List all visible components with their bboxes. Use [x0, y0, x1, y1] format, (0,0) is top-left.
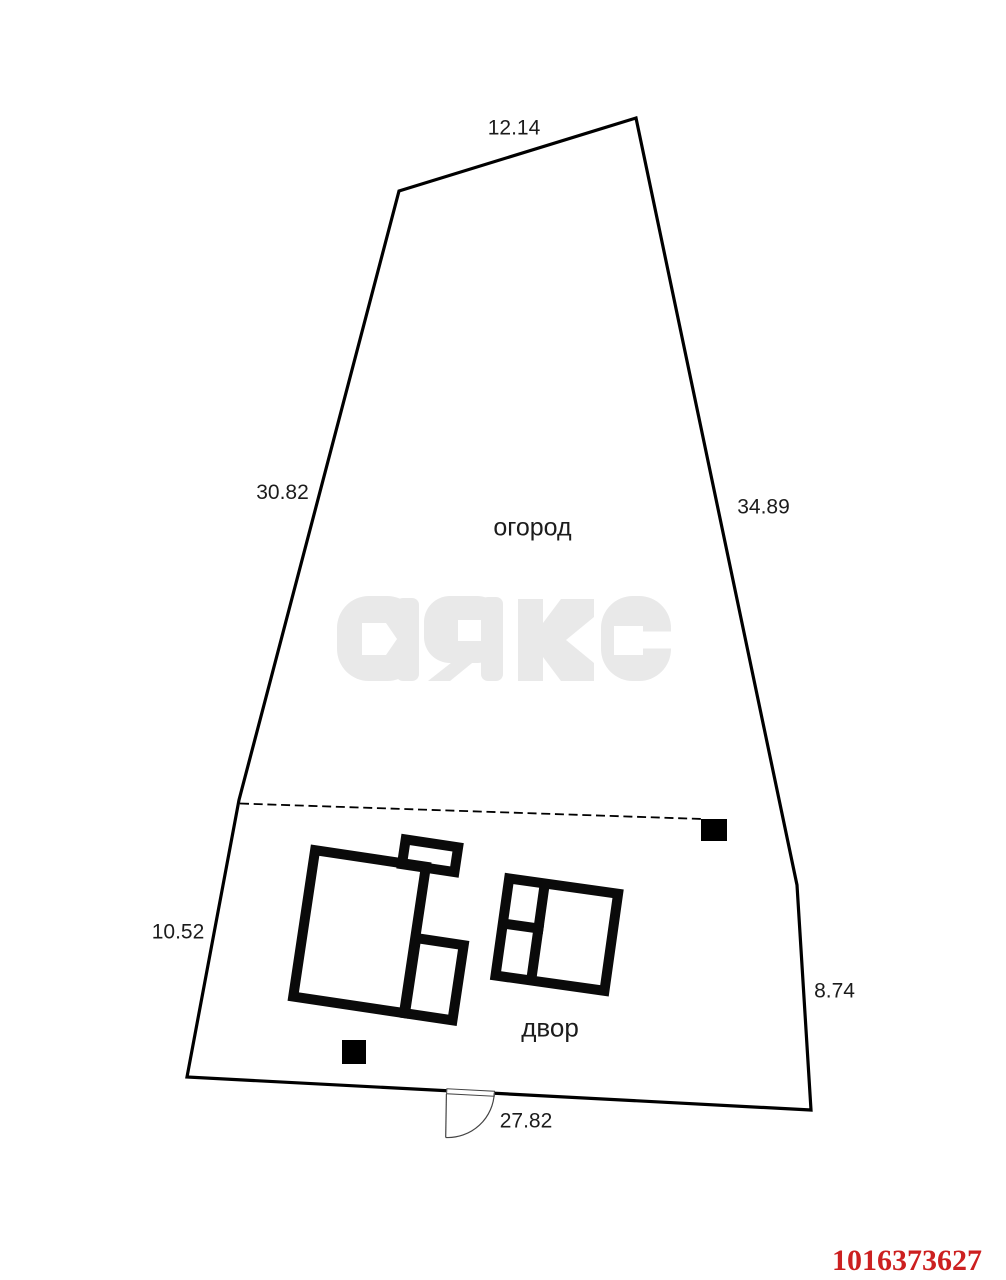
- svg-text:1016373627: 1016373627: [832, 1244, 982, 1277]
- svg-text:10.52: 10.52: [152, 921, 205, 944]
- svg-text:8.74: 8.74: [814, 980, 855, 1003]
- svg-text:34.89: 34.89: [737, 496, 790, 519]
- svg-text:огород: огород: [493, 514, 572, 542]
- svg-text:30.82: 30.82: [256, 481, 309, 504]
- svg-text:двор: двор: [521, 1013, 579, 1043]
- svg-text:12.14: 12.14: [488, 117, 541, 140]
- svg-text:27.82: 27.82: [500, 1110, 553, 1133]
